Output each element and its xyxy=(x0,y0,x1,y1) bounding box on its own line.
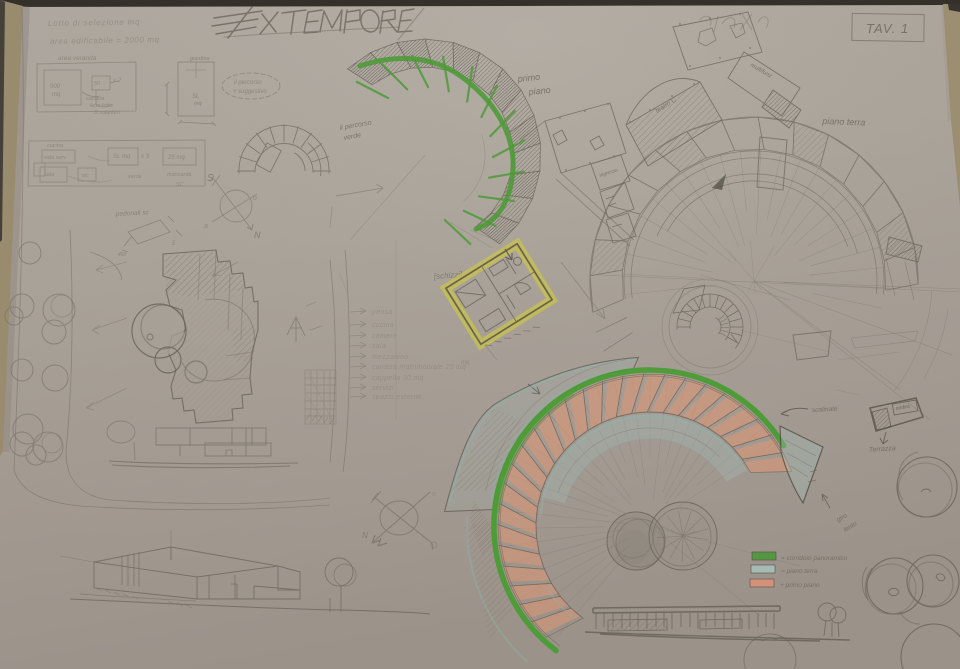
svg-text:450: 450 xyxy=(118,252,127,258)
svg-text:mansarda: mansarda xyxy=(167,172,191,178)
svg-text:area edificabile = 2000 mq: area edificabile = 2000 mq xyxy=(50,35,160,46)
svg-text:cucina: cucina xyxy=(372,322,394,329)
svg-text:wc: wc xyxy=(82,173,89,179)
svg-text:mq: mq xyxy=(52,92,61,98)
svg-text:SL mq: SL mq xyxy=(113,154,131,160)
svg-text:a: a xyxy=(204,223,208,230)
svg-text:SC: SC xyxy=(176,182,184,188)
svg-text:letto tutto: letto tutto xyxy=(90,103,113,109)
svg-text:camere: camere xyxy=(372,333,397,340)
svg-text:sala: sala xyxy=(372,343,386,350)
svg-text:camera: camera xyxy=(86,96,104,102)
svg-text:= corridoio panoramico: = corridoio panoramico xyxy=(781,555,848,562)
svg-text:x 2: x 2 xyxy=(112,78,122,84)
svg-text:sala serv: sala serv xyxy=(44,155,67,161)
svg-text:B solarium: B solarium xyxy=(94,110,120,116)
svg-text:Lotto di selezione mq: Lotto di selezione mq xyxy=(48,17,141,28)
svg-text:50: 50 xyxy=(94,81,101,87)
svg-text:N: N xyxy=(362,531,368,540)
svg-text:sala: sala xyxy=(44,172,54,178)
svg-text:SL: SL xyxy=(192,94,199,100)
svg-text:giardino: giardino xyxy=(190,56,210,62)
svg-text:x 3: x 3 xyxy=(140,154,150,160)
svg-text:camera matrimoniale 20 mq: camera matrimoniale 20 mq xyxy=(372,364,466,371)
svg-text:cucina: cucina xyxy=(47,143,63,149)
svg-text:o: o xyxy=(253,195,257,202)
svg-text:mq: mq xyxy=(194,101,203,107)
svg-text:mezzanino: mezzanino xyxy=(372,354,409,361)
svg-text:900: 900 xyxy=(50,84,61,90)
svg-text:= piano terra: = piano terra xyxy=(781,568,818,575)
svg-text:o: o xyxy=(432,491,436,498)
svg-text:TAV. 1: TAV. 1 xyxy=(866,21,909,36)
svg-text:S: S xyxy=(207,173,214,184)
svg-text:area veranda: area veranda xyxy=(58,55,97,62)
svg-text:cappella 30 mq: cappella 30 mq xyxy=(372,375,424,382)
svg-text:servizi: servizi xyxy=(372,385,394,392)
svg-text:N: N xyxy=(254,230,261,240)
svg-text:+ primo piano: + primo piano xyxy=(780,582,820,589)
svg-text:spazio esterno: spazio esterno xyxy=(372,394,422,401)
svg-text:25 mq: 25 mq xyxy=(167,155,185,161)
svg-text:pensa: pensa xyxy=(371,309,393,316)
svg-text:piano terra: piano terra xyxy=(821,116,865,128)
svg-text:+ suggestivo: + suggestivo xyxy=(233,89,268,95)
svg-text:mq: mq xyxy=(461,360,470,366)
svg-text:scalinate: scalinate xyxy=(812,406,838,414)
svg-text:verde: verde xyxy=(128,174,142,180)
svg-text:il percorso: il percorso xyxy=(234,80,262,86)
